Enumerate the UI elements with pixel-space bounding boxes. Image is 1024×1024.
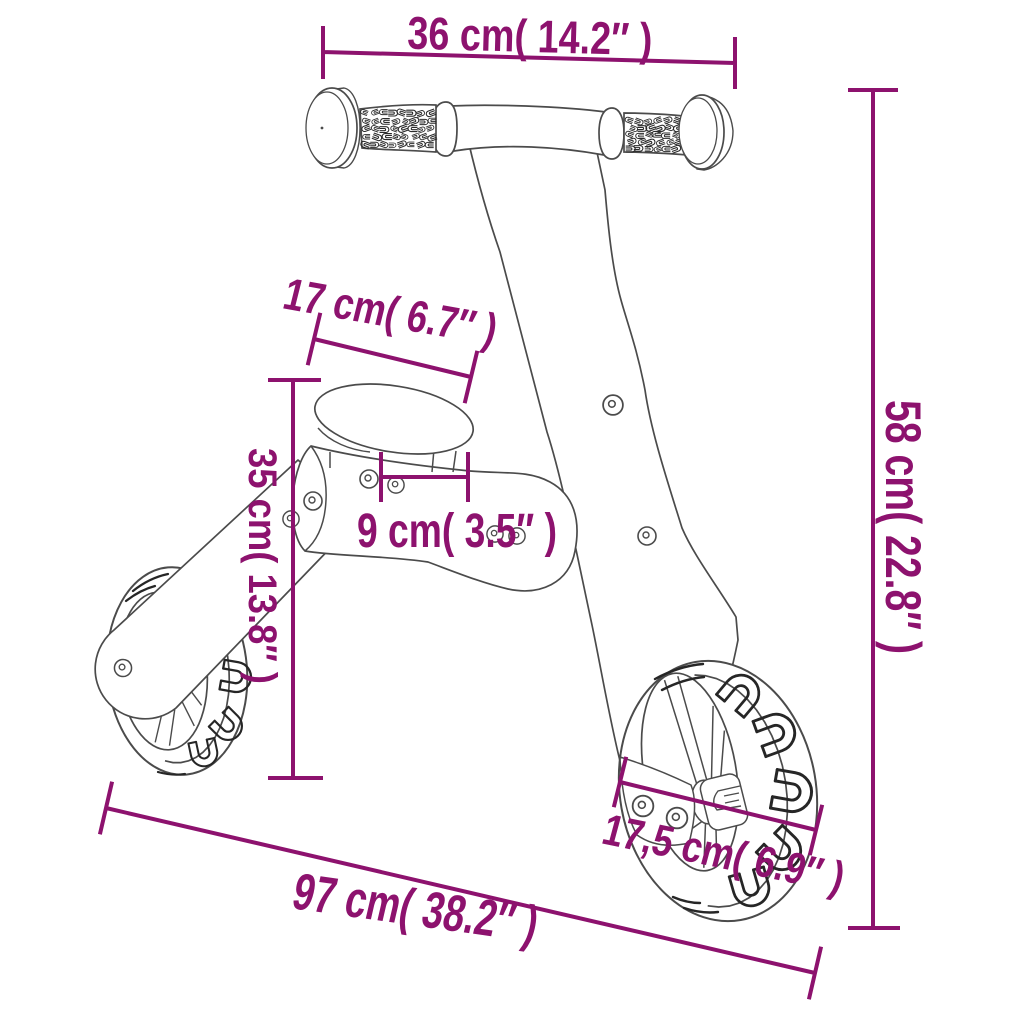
svg-text:58 cm( 22.8″ ): 58 cm( 22.8″ ) [875,400,931,654]
svg-text:9 cm( 3.5″ ): 9 cm( 3.5″ ) [357,505,557,558]
svg-text:35 cm( 13.8″ ): 35 cm( 13.8″ ) [240,448,284,684]
svg-text:36 cm( 14.2″ ): 36 cm( 14.2″ ) [407,7,653,66]
